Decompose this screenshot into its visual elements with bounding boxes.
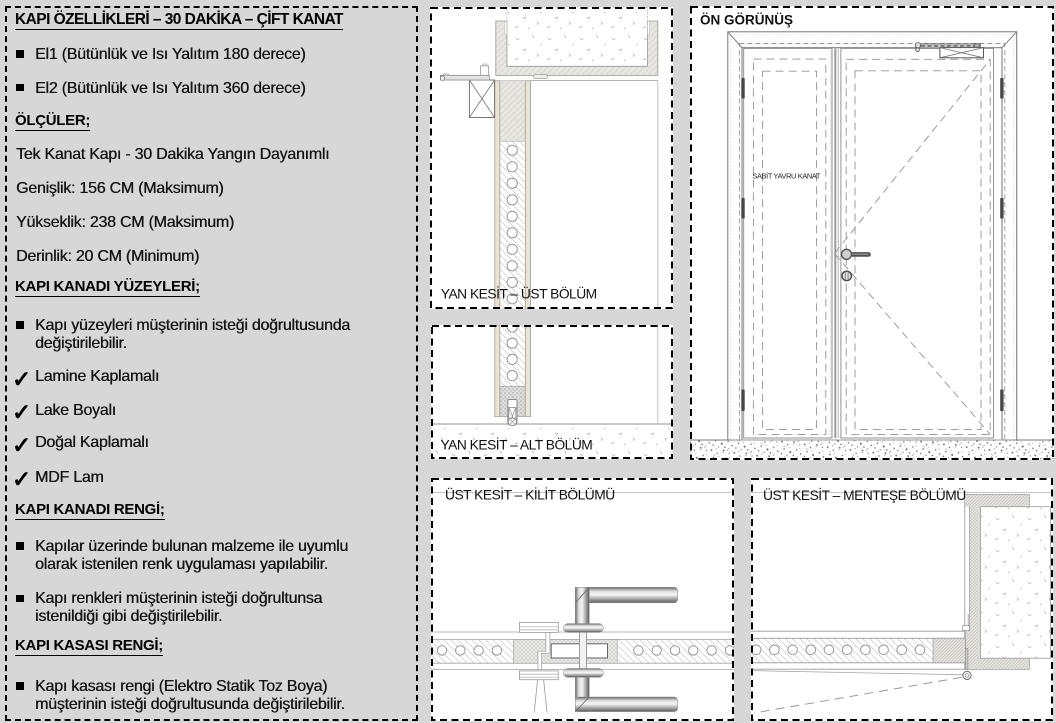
svg-text:YAN KESİT – ÜST BÖLÜM: YAN KESİT – ÜST BÖLÜM: [441, 285, 597, 302]
svg-text:ÜST KESİT – MENTEŞE BÖLÜMÜ: ÜST KESİT – MENTEŞE BÖLÜMÜ: [763, 486, 966, 503]
svg-text:YAN KESİT – ALT BÖLÜM: YAN KESİT – ALT BÖLÜM: [441, 436, 593, 453]
svg-text:ÜST KESİT – KİLİT BÖLÜMÜ: ÜST KESİT – KİLİT BÖLÜMÜ: [445, 486, 615, 503]
svg-text:ÖN GÖRÜNÜŞ: ÖN GÖRÜNÜŞ: [700, 13, 793, 28]
svg-text:SABİT YAVRU KANAT: SABİT YAVRU KANAT: [752, 171, 821, 180]
